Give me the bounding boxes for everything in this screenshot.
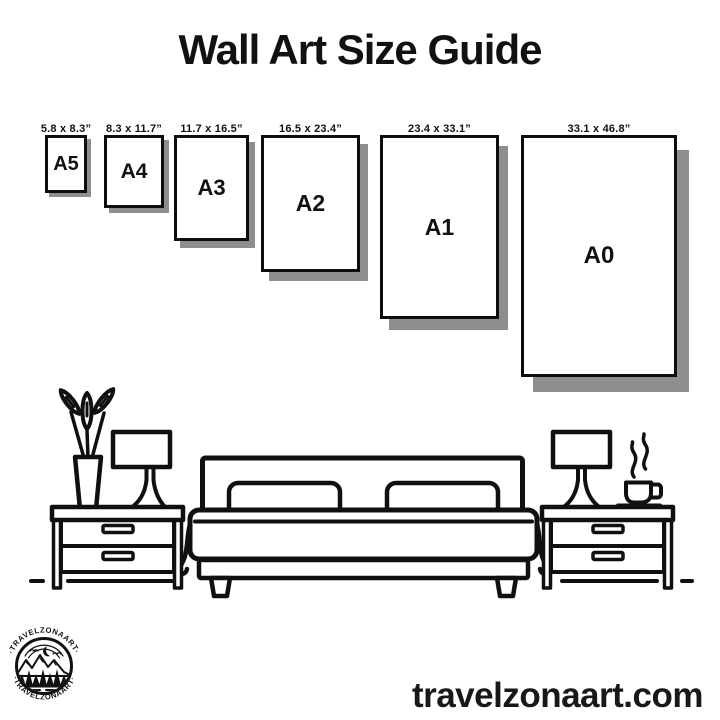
nightstand-left-icon bbox=[52, 507, 183, 588]
coffee-cup-icon bbox=[618, 434, 661, 506]
brand-logo-stamp-icon: ·TRAVELZONAART· ·TRAVELZONAART· bbox=[2, 624, 86, 708]
website-url: travelzonaart.com bbox=[412, 676, 703, 716]
nightstand-right-icon bbox=[542, 507, 673, 588]
moon-icon bbox=[43, 647, 50, 657]
vase-plant-icon bbox=[58, 387, 116, 509]
mountains-icon bbox=[16, 655, 72, 676]
bird-icon bbox=[53, 653, 61, 654]
lamp-right-icon bbox=[553, 432, 610, 508]
size-guide-poster: Wall Art Size Guide 5.8 x 8.3” A5 8.3 x … bbox=[0, 0, 720, 720]
bedroom-illustration bbox=[0, 0, 720, 720]
bed-icon bbox=[179, 458, 548, 596]
lamp-left-icon bbox=[113, 432, 170, 508]
